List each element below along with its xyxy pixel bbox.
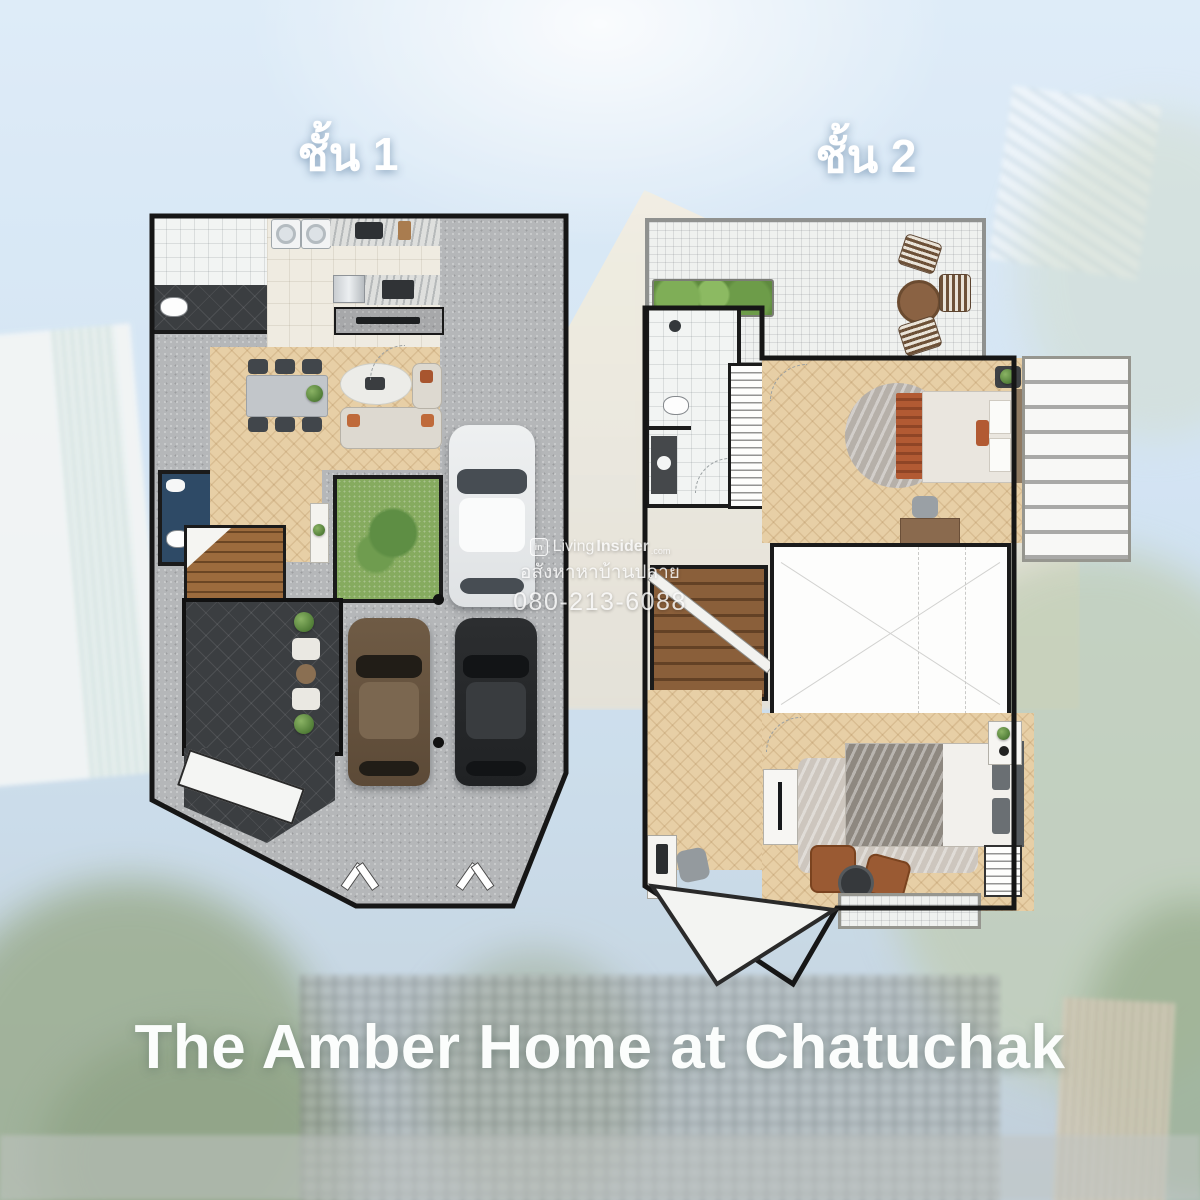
poster-title: The Amber Home at Chatuchak [0,1012,1200,1083]
bathroom-1 [152,285,271,334]
watermark-brand-suffix: .com [651,546,671,556]
toilet-icon [160,297,188,317]
bed-runner [896,393,924,479]
black-suv [455,618,537,786]
table-plant-icon [306,385,323,402]
car-windshield [356,655,422,679]
desk-plant-icon [997,727,1010,740]
refrigerator-icon [333,275,365,303]
sofa-chaise [412,363,442,409]
rear-balcony [838,893,981,929]
terrace-chair-icon [897,233,943,275]
dining-chair-icon [248,417,268,432]
washing-machine-icon [271,219,301,249]
sink-icon [657,456,671,470]
console-plant-icon [313,524,325,536]
accent-pillow-icon [976,420,989,446]
car-windshield [457,469,528,494]
utility-room [152,215,271,285]
staircase [184,525,286,606]
watermark-phone: 080-213-6088 [488,588,712,617]
watermark-brand-first: Living [553,538,595,556]
tv-icon [356,317,420,324]
sliding-door-track [965,547,966,719]
car-roof [359,682,420,739]
stair-landing [187,528,231,568]
living-insider-logo-icon: in [530,538,548,556]
dining-chair-icon [302,359,322,374]
living-dining-room [210,347,440,470]
poster-canvas: ชั้น 1 ชั้น 2 in LivingInsider.com อสังห… [0,0,1200,1200]
office-chair [675,846,711,884]
car-roof [466,682,527,739]
bathroom-3 [645,308,741,508]
watermark-brand-row: in LivingInsider.com [488,538,712,556]
patio-chair [292,638,320,660]
car-rear-glass [466,761,525,776]
desk-chair [912,496,938,518]
dining-chair-icon [248,359,268,374]
car-windshield [463,655,529,679]
pillow-icon [992,798,1010,834]
hall-plant-icon [716,897,738,919]
terrace-table [897,280,941,324]
vanity-counter [651,436,677,494]
tv-icon [778,782,782,830]
bedroom-2 [762,713,1034,911]
kitchen-counter [330,216,440,246]
sliding-door-track [918,547,919,719]
console-shelf [310,503,329,563]
watermark: in LivingInsider.com อสังหาหาบ้านปลาย 08… [488,538,712,617]
door-swing [370,345,405,380]
brown-suv [348,618,430,786]
nightstand-plant-icon [1000,369,1015,384]
sofa-pillow-icon [420,370,433,383]
courtyard-garden [333,475,443,603]
void-open-space [770,543,1011,723]
decor-items [656,844,668,874]
patio-table [296,664,316,684]
washing-machine-icon [301,219,331,249]
cooktop-icon [382,280,414,299]
toilet-icon [663,396,689,415]
shoe-rack [984,845,1022,897]
floor2-plan [640,213,1135,998]
dining-chair-icon [275,359,295,374]
desk [900,518,960,544]
bath-divider-wall [649,426,691,430]
floor1-label: ชั้น 1 [268,118,428,191]
office-bench [647,835,677,899]
watermark-brand-second: Insider [596,538,648,556]
floor2-label: ชั้น 2 [786,120,946,193]
kitchen-counter-2 [365,275,440,305]
gate-marker-icon [453,861,493,891]
desk-2 [988,721,1022,765]
master-bed [922,391,1016,483]
cutting-board-icon [398,221,411,240]
column-marker [433,737,444,748]
terrace-chair-icon [939,274,971,312]
tv-console [763,769,798,845]
patio [182,598,343,756]
patio-plant-icon [294,612,314,632]
door-swing [766,717,801,752]
column-marker [433,594,444,605]
master-bedroom [762,358,1034,543]
dining-chair-icon [302,417,322,432]
pillow-icon [989,438,1011,472]
kitchen-sink-icon [355,222,383,239]
door-swing [695,458,730,493]
sink-icon [166,479,185,492]
shower-head-icon [669,320,681,332]
terrace-chair-icon [897,315,943,357]
dining-chair-icon [275,417,295,432]
bed-blanket [846,744,943,846]
pillow-icon [989,400,1011,434]
bowl-icon [999,746,1009,756]
patio-chair [292,688,320,710]
tv-wall [334,307,444,335]
sofa-pillow-icon [421,414,434,427]
car-rear-glass [359,761,418,776]
side-balcony-slats [1022,356,1131,562]
patio-plant-icon [294,714,314,734]
sofa [340,407,442,449]
gate-marker-icon [338,861,378,891]
door-swing [770,364,807,401]
watermark-tagline: อสังหาหาบ้านปลาย [488,557,712,587]
nightstand [995,366,1021,388]
sofa-pillow-icon [347,414,360,427]
